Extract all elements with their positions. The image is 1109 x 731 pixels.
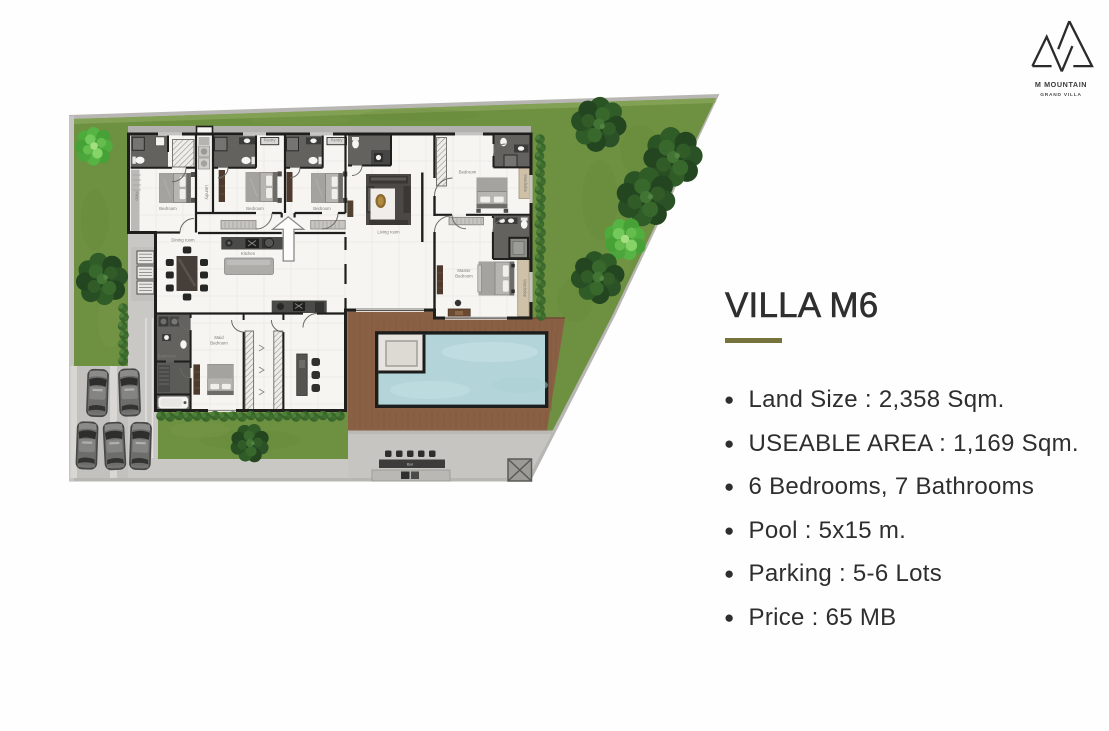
svg-text:Pantry: Pantry <box>264 138 277 143</box>
svg-text:Patio: Patio <box>135 191 140 201</box>
svg-text:Bathroom: Bathroom <box>158 354 177 359</box>
svg-text:M MOUNTAIN: M MOUNTAIN <box>1035 80 1087 89</box>
svg-text:Dining room: Dining room <box>171 238 195 243</box>
svg-text:Bedroom: Bedroom <box>159 206 177 211</box>
svg-text:Bedroom: Bedroom <box>246 206 264 211</box>
svg-text:Bedroom: Bedroom <box>455 274 473 279</box>
svg-text:Living room: Living room <box>377 230 400 235</box>
svg-text:Bedroom: Bedroom <box>459 170 477 175</box>
svg-text:Pantry: Pantry <box>331 138 344 143</box>
svg-text:Master: Master <box>457 268 471 273</box>
svg-text:Kitchen: Kitchen <box>241 251 256 256</box>
svg-text:Bedroom: Bedroom <box>210 341 228 346</box>
svg-text:Wardrobe: Wardrobe <box>523 174 528 193</box>
svg-text:Bar: Bar <box>407 462 414 467</box>
svg-text:GRAND VILLA: GRAND VILLA <box>1040 92 1082 98</box>
svg-text:Maid: Maid <box>214 335 224 340</box>
svg-text:Laundry: Laundry <box>205 185 210 201</box>
svg-text:Wardrobe: Wardrobe <box>523 279 528 298</box>
svg-text:Bedroom: Bedroom <box>313 206 331 211</box>
